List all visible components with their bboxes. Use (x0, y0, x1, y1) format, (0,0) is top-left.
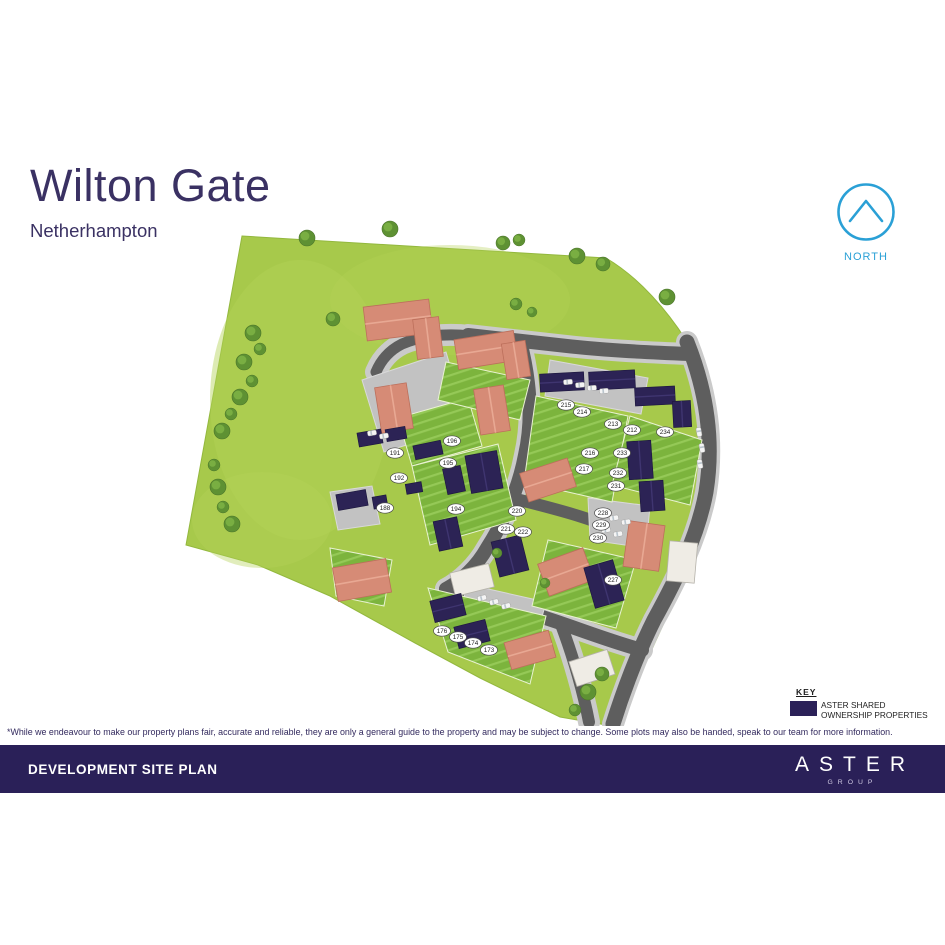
svg-text:221: 221 (501, 526, 512, 533)
tree-icon (246, 375, 258, 387)
svg-text:214: 214 (577, 409, 588, 416)
tree-icon (595, 667, 609, 681)
plot-badge: 232 (610, 468, 627, 478)
plot-badge: 217 (576, 464, 593, 474)
svg-text:216: 216 (585, 450, 596, 457)
tree-icon (214, 423, 230, 439)
plot-badge: 176 (434, 626, 451, 636)
tree-icon (236, 354, 252, 370)
tree-icon (326, 312, 340, 326)
car-icon (563, 379, 572, 385)
car-icon (599, 388, 608, 394)
plot-badge: 229 (593, 520, 610, 530)
svg-text:232: 232 (613, 470, 624, 477)
plot-badge: 222 (515, 527, 532, 537)
tree-icon (217, 501, 229, 513)
car-icon (575, 382, 584, 388)
tree-icon (208, 459, 220, 471)
svg-text:215: 215 (561, 402, 572, 409)
tree-icon (659, 289, 675, 305)
key-swatch (790, 701, 817, 716)
disclaimer-text: *While we endeavour to make our property… (7, 727, 937, 737)
footer-bar: DEVELOPMENT SITE PLAN ASTER GROUP (0, 745, 945, 793)
aster-logo-name: ASTER (785, 753, 915, 777)
tree-icon (510, 298, 522, 310)
svg-text:195: 195 (443, 460, 454, 467)
key-title: KEY (796, 687, 930, 697)
svg-text:192: 192 (394, 475, 405, 482)
tree-icon (224, 516, 240, 532)
plot-badge: 220 (509, 506, 526, 516)
svg-text:220: 220 (512, 508, 523, 515)
tree-icon (580, 684, 596, 700)
plot-badge: 233 (614, 448, 631, 458)
tree-icon (492, 548, 502, 558)
svg-text:191: 191 (390, 450, 401, 457)
svg-text:188: 188 (380, 505, 391, 512)
svg-text:231: 231 (611, 483, 622, 490)
tree-icon (382, 221, 398, 237)
footer-title: DEVELOPMENT SITE PLAN (28, 762, 218, 777)
tree-icon (210, 479, 226, 495)
plot-badge: 194 (448, 504, 465, 514)
svg-text:233: 233 (617, 450, 628, 457)
car-icon (587, 385, 596, 391)
tree-icon (254, 343, 266, 355)
tree-icon (527, 307, 537, 317)
aster-logo: ASTER GROUP (785, 753, 915, 786)
svg-text:230: 230 (593, 535, 604, 542)
plot-badge: 191 (387, 448, 404, 458)
plot-badge: 227 (605, 575, 622, 585)
plot-badge: 230 (590, 533, 607, 543)
map-key: KEY ASTER SHARED OWNERSHIP PROPERTIES (790, 687, 930, 720)
plot-badge: 173 (481, 645, 498, 655)
plot-badge: 214 (574, 407, 591, 417)
aster-logo-sub: GROUP (785, 779, 915, 786)
svg-text:175: 175 (453, 634, 464, 641)
svg-text:174: 174 (468, 640, 479, 647)
tree-icon (569, 248, 585, 264)
key-label: ASTER SHARED OWNERSHIP PROPERTIES (821, 700, 928, 720)
svg-text:194: 194 (451, 506, 462, 513)
tree-icon (225, 408, 237, 420)
plot-badge: 195 (440, 458, 457, 468)
svg-text:234: 234 (660, 429, 671, 436)
tree-icon (596, 257, 610, 271)
plot-badge: 215 (558, 400, 575, 410)
plot-badge: 216 (582, 448, 599, 458)
tree-icon (232, 389, 248, 405)
svg-text:176: 176 (437, 628, 448, 635)
plot-badge: 212 (624, 425, 641, 435)
svg-text:173: 173 (484, 647, 495, 654)
plot-badge: 231 (608, 481, 625, 491)
tree-icon (245, 325, 261, 341)
tree-icon (299, 230, 315, 246)
plot-badge: 188 (377, 503, 394, 513)
tree-icon (569, 704, 581, 716)
tree-icon (540, 578, 550, 588)
page: Wilton Gate Netherhampton NORTH (0, 0, 945, 945)
plot-badge: 234 (657, 427, 674, 437)
site-plan: 1731741751761881911921941951962122132142… (0, 0, 945, 726)
plot-badge: 174 (465, 638, 482, 648)
svg-text:213: 213 (608, 421, 619, 428)
plot-badge: 228 (595, 508, 612, 518)
plot-badge: 175 (450, 632, 467, 642)
svg-text:222: 222 (518, 529, 529, 536)
svg-text:196: 196 (447, 438, 458, 445)
svg-text:227: 227 (608, 577, 619, 584)
tree-icon (496, 236, 510, 250)
tree-icon (513, 234, 525, 246)
svg-text:228: 228 (598, 510, 609, 517)
plot-badge: 221 (498, 524, 515, 534)
svg-text:229: 229 (596, 522, 607, 529)
plot-badge: 192 (391, 473, 408, 483)
svg-text:212: 212 (627, 427, 638, 434)
plot-badge: 196 (444, 436, 461, 446)
svg-text:217: 217 (579, 466, 590, 473)
plot-badge: 213 (605, 419, 622, 429)
